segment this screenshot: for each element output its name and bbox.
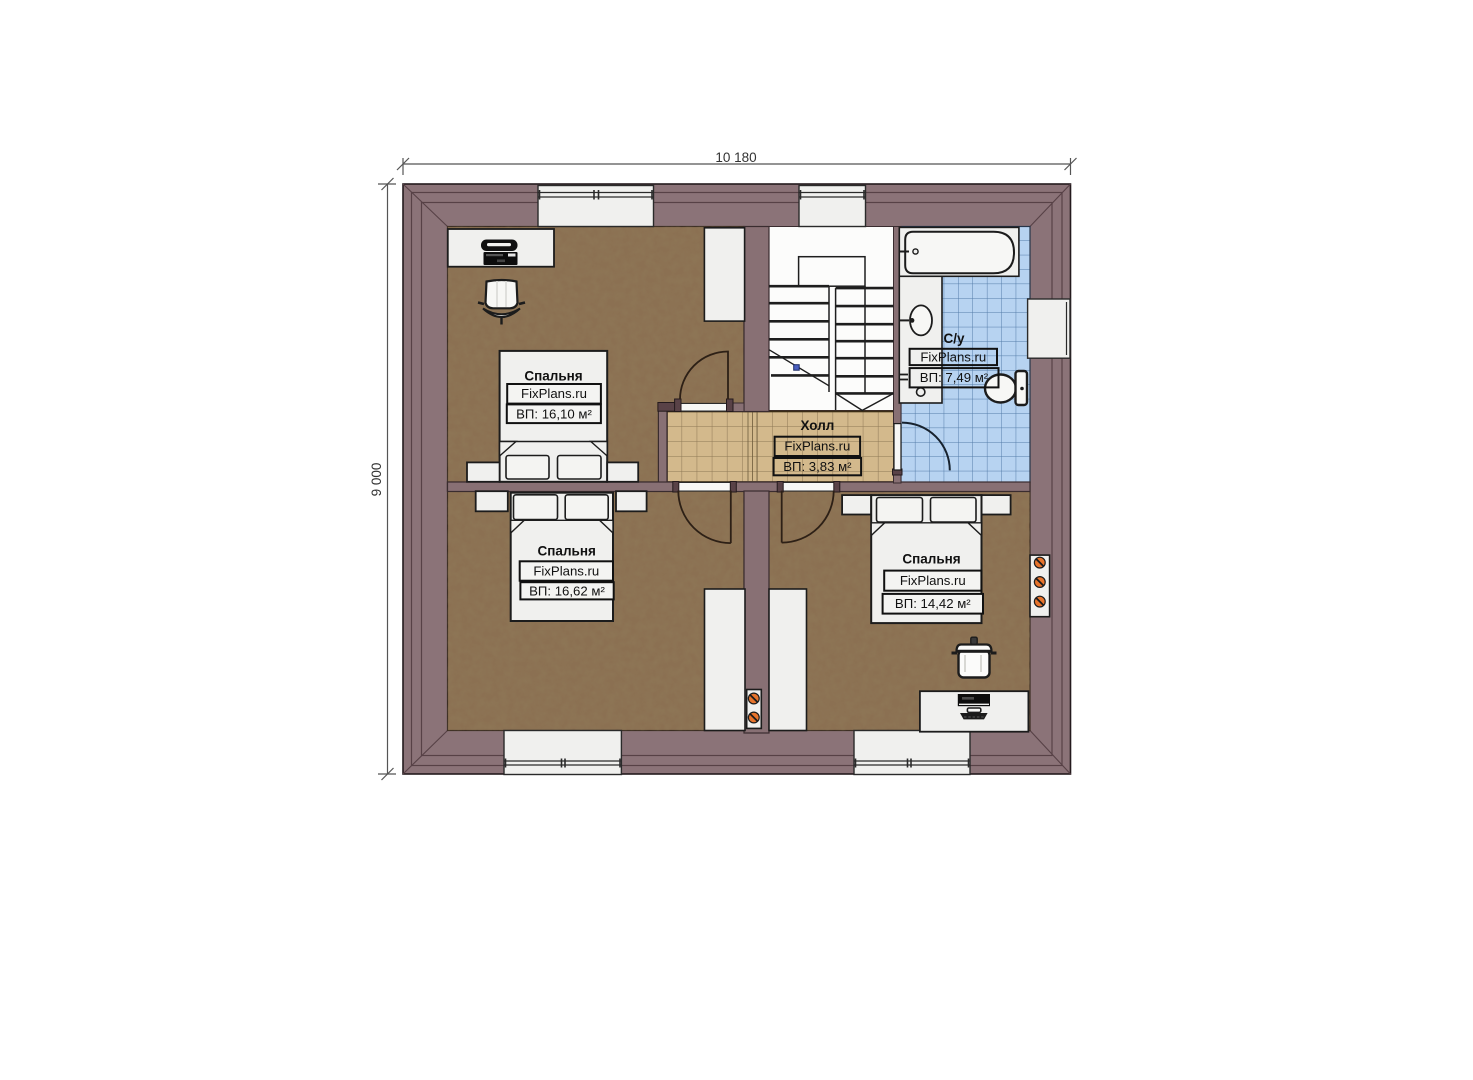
svg-text:FixPlans.ru: FixPlans.ru: [920, 349, 986, 364]
svg-text:FixPlans.ru: FixPlans.ru: [784, 439, 850, 454]
svg-text:9 000: 9 000: [369, 463, 384, 497]
svg-text:FixPlans.ru: FixPlans.ru: [533, 563, 599, 578]
svg-text:ВП: 14,42 м²: ВП: 14,42 м²: [895, 596, 971, 611]
svg-text:FixPlans.ru: FixPlans.ru: [521, 386, 587, 401]
svg-text:FixPlans.ru: FixPlans.ru: [900, 573, 966, 588]
svg-text:ВП: 7,49 м²: ВП: 7,49 м²: [920, 370, 989, 385]
svg-text:Холл: Холл: [800, 418, 834, 433]
svg-text:С/у: С/у: [943, 331, 965, 346]
svg-text:ВП: 3,83 м²: ВП: 3,83 м²: [783, 459, 852, 474]
svg-text:Спальня: Спальня: [538, 544, 596, 559]
svg-text:ВП: 16,10 м²: ВП: 16,10 м²: [516, 406, 592, 421]
svg-text:10 180: 10 180: [715, 150, 756, 165]
svg-text:ВП: 16,62 м²: ВП: 16,62 м²: [529, 584, 605, 599]
svg-text:Спальня: Спальня: [902, 552, 960, 567]
svg-text:Спальня: Спальня: [524, 369, 582, 384]
